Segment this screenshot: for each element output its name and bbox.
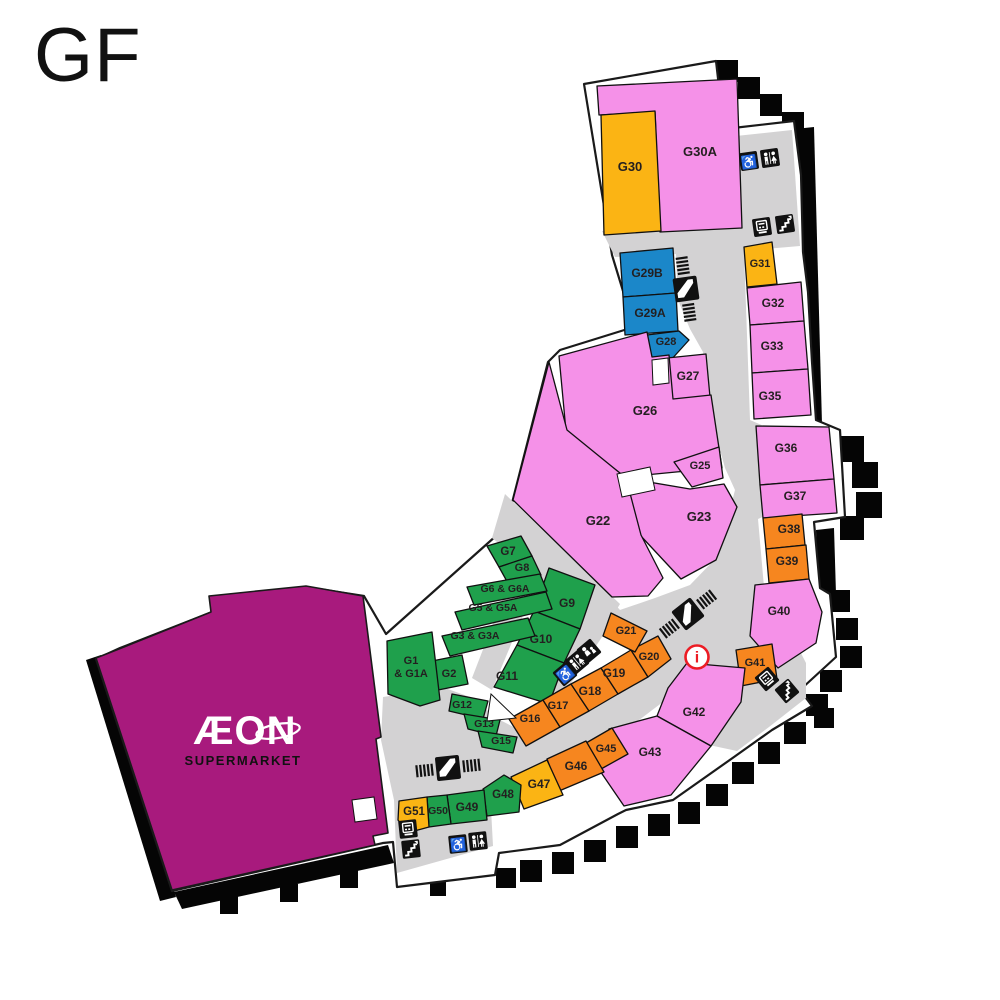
- unit-label: G29B: [631, 266, 663, 280]
- information-icon: i: [686, 646, 709, 669]
- unit-g31[interactable]: G31: [744, 242, 777, 287]
- unit-label: G5 & G5A: [468, 602, 517, 614]
- unit-g37[interactable]: G37: [760, 479, 837, 518]
- unit-label: G42: [683, 705, 706, 719]
- unit-label: G50: [428, 805, 448, 817]
- unit-label: G1: [404, 655, 419, 667]
- unit-label: G47: [528, 777, 551, 791]
- unit-label: G49: [456, 800, 479, 814]
- unit-label: G43: [639, 745, 662, 759]
- unit-label: G38: [778, 522, 801, 536]
- unit-label: G28: [656, 336, 677, 348]
- unit-label: G45: [596, 743, 617, 755]
- unit-g29b[interactable]: G29B: [620, 248, 676, 297]
- unit-shape-g36[interactable]: [756, 426, 834, 485]
- unit-label: G30: [618, 159, 643, 174]
- unit-label: G39: [776, 554, 799, 568]
- svg-text:♿: ♿: [740, 153, 758, 170]
- unit-label: G26: [633, 403, 658, 418]
- unit-g32[interactable]: G32: [747, 282, 804, 325]
- unit-label-line2: & G1A: [394, 668, 428, 680]
- unit-g30[interactable]: G30: [601, 111, 661, 235]
- unit-g39[interactable]: G39: [766, 545, 809, 583]
- wheelchair-icon: ♿: [739, 151, 759, 171]
- stairs-icon: [775, 214, 795, 234]
- unit-label: G37: [784, 489, 807, 503]
- unit-label: G23: [687, 509, 712, 524]
- atm-icon: [752, 217, 772, 237]
- floor-plan: GF ÆONSUPERMARKETG30AG30G31G29BG29AG28G2…: [0, 0, 1000, 1000]
- unit-label: G25: [690, 460, 711, 472]
- unit-g50[interactable]: G50: [427, 795, 451, 827]
- unit-label: G18: [579, 684, 602, 698]
- unit-label: G12: [452, 699, 472, 711]
- aeon-logo: ÆON: [194, 709, 297, 753]
- unit-label: G21: [616, 625, 637, 637]
- unit-g33[interactable]: G33: [750, 321, 808, 373]
- unit-label: G9: [559, 596, 575, 610]
- unit-label: G41: [745, 657, 766, 669]
- stairs-icon: [401, 839, 421, 859]
- unit-label: G46: [565, 759, 588, 773]
- unit-label: G32: [762, 296, 785, 310]
- unit-label: G40: [768, 604, 791, 618]
- toilets-icon: [760, 148, 780, 168]
- unit-label: G33: [761, 339, 784, 353]
- unit-label: G11: [496, 669, 518, 683]
- unit-label: G27: [677, 369, 700, 383]
- unit-g27[interactable]: G27: [667, 354, 710, 401]
- unit-label: G48: [492, 789, 514, 801]
- toilets-icon: [468, 831, 488, 851]
- unit-label: G19: [603, 666, 626, 680]
- unit-g36[interactable]: G36: [756, 426, 834, 485]
- wheelchair-icon: ♿: [448, 834, 468, 854]
- aeon-supermarket-label: SUPERMARKET: [185, 753, 302, 768]
- unit-label: G30A: [683, 144, 718, 159]
- unit-g29a[interactable]: G29A: [623, 293, 678, 335]
- unit-label: G16: [520, 713, 541, 725]
- unit-label: G22: [586, 513, 611, 528]
- unit-label: G29A: [634, 306, 666, 320]
- unit-label: G6 & G6A: [480, 583, 529, 595]
- unit-label: G51: [403, 806, 425, 818]
- unit-label: G3 & G3A: [450, 630, 499, 642]
- unit-g1[interactable]: G1& G1A: [387, 632, 440, 706]
- unit-label: G7: [500, 546, 515, 558]
- unit-label: G17: [548, 700, 569, 712]
- unit-g49[interactable]: G49: [447, 790, 487, 824]
- unit-aeon-supermarket[interactable]: ÆONSUPERMARKET: [96, 586, 388, 890]
- unit-label: G2: [442, 668, 457, 680]
- unit-label: G31: [750, 258, 771, 270]
- unit-label: G15: [491, 735, 511, 747]
- svg-text:i: i: [695, 650, 699, 667]
- unit-label: G35: [759, 389, 782, 403]
- unit-g35[interactable]: G35: [752, 369, 811, 419]
- unit-label: G8: [515, 562, 530, 574]
- svg-text:♿: ♿: [449, 837, 467, 854]
- unit-label: G36: [775, 441, 798, 455]
- mall-map-svg: ÆONSUPERMARKETG30AG30G31G29BG29AG28G27G2…: [0, 0, 1000, 1000]
- unit-label: G20: [639, 651, 660, 663]
- atm-icon: [398, 819, 418, 839]
- unit-g38[interactable]: G38: [763, 514, 805, 549]
